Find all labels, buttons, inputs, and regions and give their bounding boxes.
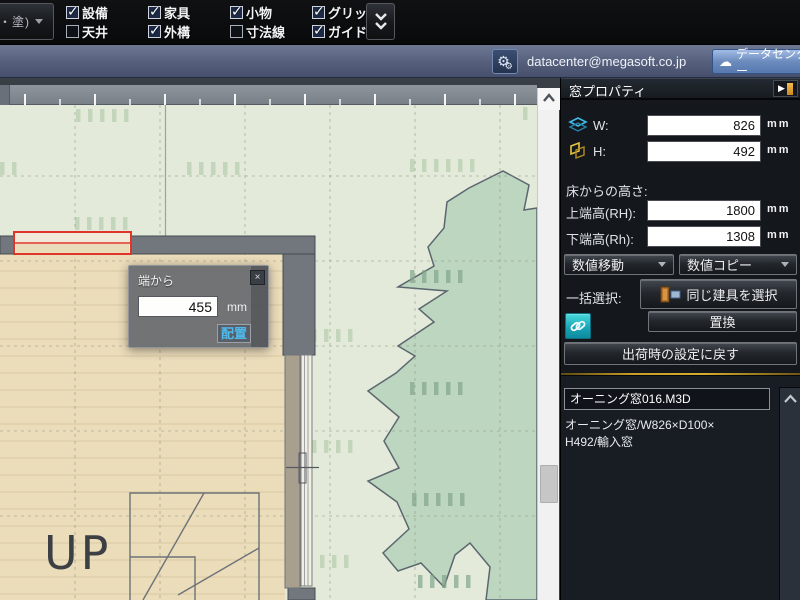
expand-toolbar-button[interactable] — [366, 3, 395, 40]
toggle-setsubi[interactable]: 設備 — [66, 4, 138, 20]
panel-header: 窓プロパティ ▶ — [561, 78, 800, 100]
replace-button[interactable]: 置換 — [648, 311, 797, 332]
numeric-copy-label: 数値コピー — [687, 255, 752, 274]
height-unit: mm — [767, 144, 791, 156]
item-description-line2: H492/輸入窓 — [565, 434, 777, 451]
ruler-ticks — [0, 85, 537, 105]
top-height-unit: mm — [767, 203, 791, 215]
width-row: W: mm — [561, 115, 800, 138]
top-height-input[interactable] — [647, 200, 761, 221]
panel-scrollbar[interactable] — [779, 387, 800, 600]
chain-link-icon — [569, 317, 587, 335]
popup-unit-label: mm — [227, 300, 247, 314]
link-button[interactable] — [565, 313, 591, 339]
close-icon[interactable]: × — [250, 270, 265, 285]
checkbox-icon[interactable] — [66, 25, 79, 38]
bottom-height-unit: mm — [767, 229, 791, 241]
replace-label: 置換 — [709, 312, 735, 331]
account-email: datacenter@megasoft.co.jp — [527, 54, 686, 69]
item-name-box[interactable]: オーニング窓016.M3D — [564, 388, 770, 410]
height-row: H: mm — [561, 141, 800, 164]
triangle-right-icon: ▶ — [778, 84, 785, 93]
layer-toggle-group: 設備 天井 家具 外構 小物 — [66, 4, 392, 39]
cloud-icon: ☁ — [719, 54, 732, 70]
scrollbar-thumb[interactable] — [540, 465, 558, 503]
floor-height-label: 床からの高さ: — [566, 181, 648, 200]
orange-bar-icon — [787, 83, 793, 95]
panel-title: 窓プロパティ — [569, 81, 646, 100]
height-label: H: — [593, 144, 606, 159]
clipped-tool-button[interactable]: ・塗) — [0, 3, 54, 40]
checkbox-icon[interactable] — [148, 6, 161, 19]
batch-select-label: 一括選択: — [566, 288, 622, 307]
dropdown-arrow-icon — [658, 262, 666, 267]
panel-collapse-button[interactable]: ▶ — [773, 80, 798, 97]
dropdown-arrow-icon — [35, 19, 43, 24]
workspace: UP 端から × mm 配置 — [0, 78, 800, 600]
door-icon — [659, 285, 681, 303]
select-same-fitting-label: 同じ建具を選択 — [686, 285, 777, 304]
width-input[interactable] — [647, 115, 761, 136]
select-same-fitting-button[interactable]: 同じ建具を選択 — [640, 279, 797, 309]
top-height-label: 上端高(RH): — [566, 203, 636, 222]
double-chevron-down-icon — [374, 11, 388, 33]
toggle-sunposen[interactable]: 寸法線 — [230, 23, 302, 39]
height-input[interactable] — [647, 141, 761, 162]
distance-input[interactable] — [138, 296, 218, 317]
selected-window[interactable] — [14, 232, 131, 254]
width-dimension-icon — [567, 116, 589, 134]
popup-title: 端から — [138, 272, 174, 289]
distance-popup: 端から × mm 配置 — [128, 265, 269, 348]
application-window: ・塗) 設備 天井 家具 外構 — [0, 0, 800, 600]
checkbox-icon[interactable] — [312, 25, 325, 38]
horizontal-ruler — [0, 85, 537, 105]
ruler-corner — [0, 85, 10, 105]
width-label: W: — [593, 118, 609, 133]
floor-height-row: 床からの高さ: — [561, 178, 800, 201]
numeric-move-dropdown[interactable]: 数値移動 — [564, 254, 674, 275]
height-dimension-icon — [567, 142, 589, 160]
bottom-height-row: 下端高(Rh): mm — [561, 226, 800, 249]
top-toolbar: ・塗) 設備 天井 家具 外構 — [0, 0, 800, 45]
clipped-tool-label: ・塗) — [0, 13, 30, 30]
chevron-up-icon — [783, 393, 798, 405]
checkbox-icon[interactable] — [148, 25, 161, 38]
up-label: UP — [44, 526, 111, 580]
chevron-up-icon — [538, 88, 560, 110]
toggle-label: 小物 — [246, 3, 272, 22]
floor-plan-canvas[interactable]: UP — [0, 105, 537, 600]
top-height-row: 上端高(RH): mm — [561, 200, 800, 223]
toggle-label: 家具 — [164, 3, 190, 22]
item-description-line1: オーニング窓/W826×D100× — [565, 417, 777, 434]
dropdown-arrow-icon — [781, 262, 789, 267]
toggle-label: 天井 — [82, 22, 108, 41]
bottom-height-label: 下端高(Rh): — [566, 229, 634, 248]
settings-gears-icon[interactable]: ⚙⚙ — [492, 49, 518, 74]
window-properties-panel: 窓プロパティ ▶ W: mm — [560, 78, 800, 600]
account-bar: ⚙⚙ datacenter@megasoft.co.jp ☁ データセンター — [0, 45, 800, 78]
numeric-move-label: 数値移動 — [572, 255, 624, 274]
reset-to-factory-button[interactable]: 出荷時の設定に戻す — [564, 342, 797, 365]
reset-label: 出荷時の設定に戻す — [622, 344, 739, 363]
toggle-kagu[interactable]: 家具 — [148, 4, 220, 20]
scroll-up-button[interactable] — [538, 88, 560, 110]
place-button[interactable]: 配置 — [217, 324, 251, 343]
canvas-vertical-scrollbar[interactable] — [537, 88, 559, 600]
toggle-tenjo[interactable]: 天井 — [66, 23, 138, 39]
item-description: オーニング窓/W826×D100× H492/輸入窓 — [565, 417, 777, 451]
toggle-gaikou[interactable]: 外構 — [148, 23, 220, 39]
numeric-copy-dropdown[interactable]: 数値コピー — [679, 254, 797, 275]
bottom-height-input[interactable] — [647, 226, 761, 247]
checkbox-icon[interactable] — [230, 25, 243, 38]
canvas-area: UP 端から × mm 配置 — [0, 78, 560, 600]
checkbox-icon[interactable] — [230, 6, 243, 19]
checkbox-icon[interactable] — [312, 6, 325, 19]
toggle-label: 設備 — [82, 3, 108, 22]
datacenter-button-label: データセンター — [736, 45, 800, 79]
checkbox-icon[interactable] — [66, 6, 79, 19]
datacenter-button[interactable]: ☁ データセンター — [712, 49, 800, 74]
toggle-komono[interactable]: 小物 — [230, 4, 302, 20]
toggle-label: 外構 — [164, 22, 190, 41]
width-unit: mm — [767, 118, 791, 130]
toggle-label: 寸法線 — [246, 22, 285, 41]
